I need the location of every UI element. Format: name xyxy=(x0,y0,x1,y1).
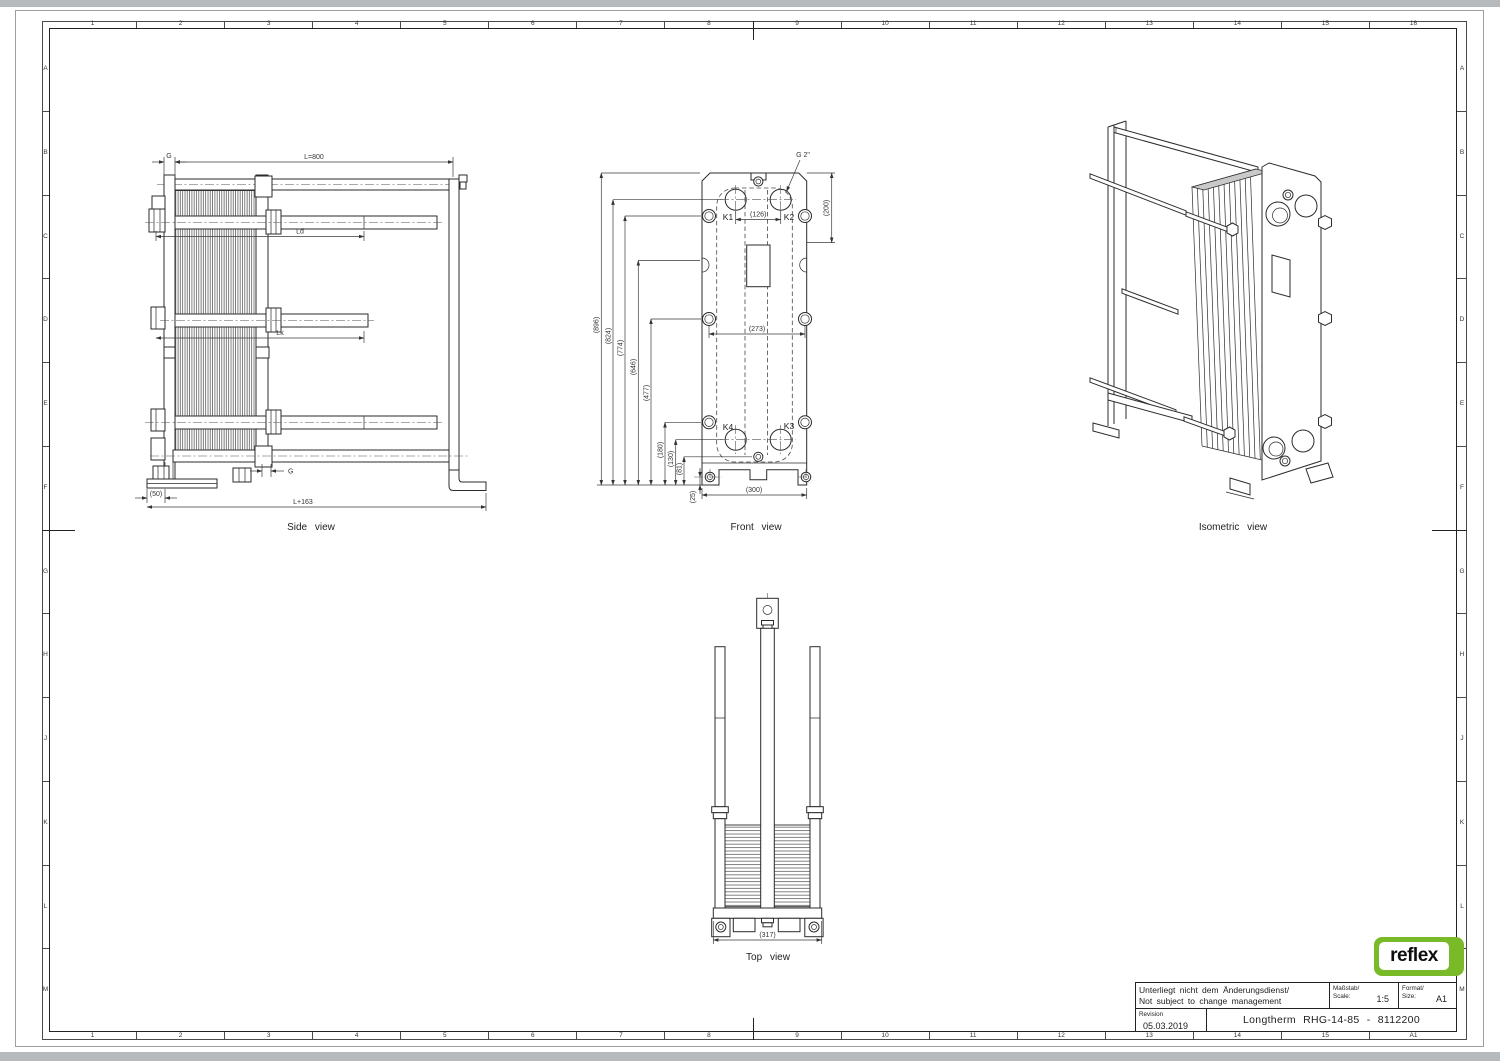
grid-label: B xyxy=(42,111,49,195)
scale-cell: Maßstab/ Scale: 1:5 xyxy=(1329,983,1398,1008)
revision-label: Revision xyxy=(1139,1011,1203,1019)
grid-label: H xyxy=(42,613,49,697)
reflex-logo-text: reflex xyxy=(1390,945,1438,967)
grid-label: F xyxy=(1457,446,1467,530)
grid-label: 15 xyxy=(1281,21,1369,28)
grid-label: 14 xyxy=(1193,21,1281,28)
dim-774: (774) xyxy=(617,340,624,356)
grid-label: 12 xyxy=(1017,1032,1105,1040)
reflex-logo-plate: reflex xyxy=(1379,942,1449,970)
dim-foot: (50) xyxy=(150,491,162,498)
dim-896: (896) xyxy=(594,317,601,333)
dim-824: (824) xyxy=(605,328,612,344)
connection-size-label: G 2" xyxy=(796,152,810,159)
grid-label: J xyxy=(1457,697,1467,781)
grid-label: 13 xyxy=(1105,21,1193,28)
grid-label: 4 xyxy=(312,1032,400,1040)
grid-label: 1 xyxy=(49,1032,136,1040)
format-cell: Format/ Size: A1 xyxy=(1398,983,1456,1008)
port-label-k3: K3 xyxy=(784,421,795,431)
dim-130: (130) xyxy=(668,451,675,467)
grid-label: K xyxy=(1457,781,1467,865)
grid-label: E xyxy=(1457,362,1467,446)
scale-value: 1:5 xyxy=(1376,994,1389,1004)
grid-label: M xyxy=(42,948,49,1032)
grid-label: J xyxy=(42,697,49,781)
grid-label: 6 xyxy=(488,1032,576,1040)
grid-label: 7 xyxy=(576,1032,664,1040)
isometric-view: Isometric view xyxy=(1090,121,1333,533)
ports xyxy=(720,185,796,454)
dim-g-bottom: G xyxy=(288,469,293,476)
grid-label: 2 xyxy=(136,1032,224,1040)
dim-length: L=800 xyxy=(304,154,324,161)
grid-label: 1 xyxy=(49,21,136,28)
grid-label: 9 xyxy=(753,21,841,28)
dim-g-top: G xyxy=(166,153,171,160)
frame-bolts xyxy=(703,210,812,429)
dim-25: (25) xyxy=(690,491,697,503)
port-label-k4: K4 xyxy=(723,422,734,432)
drawing-title: Longtherm RHG-14-85 - 8112200 xyxy=(1206,1009,1456,1031)
grid-label: D xyxy=(1457,278,1467,362)
grid-label: 13 xyxy=(1105,1032,1193,1040)
grid-label: K xyxy=(42,781,49,865)
dim-317: (317) xyxy=(759,932,775,939)
grid-label: 4 xyxy=(312,21,400,28)
grid-label: 11 xyxy=(929,1032,1017,1040)
port-label-k1: K1 xyxy=(723,212,734,222)
title-block: Unterliegt nicht dem Änderungsdienst/ No… xyxy=(1135,982,1457,1032)
grid-label: A xyxy=(42,28,49,111)
note-line-en: Not subject to change management xyxy=(1139,996,1326,1007)
grid-label: 6 xyxy=(488,21,576,28)
dim-total: L+163 xyxy=(293,499,313,506)
dim-273: (273) xyxy=(749,326,765,333)
grid-label: A xyxy=(1457,28,1467,111)
grid-label: 14 xyxy=(1193,1032,1281,1040)
screen-edge-bottom xyxy=(0,1052,1500,1061)
grid-label: C xyxy=(42,195,49,279)
grid-label: 12 xyxy=(1017,21,1105,28)
grid-label: C xyxy=(1457,195,1467,279)
grid-label: 7 xyxy=(576,21,664,28)
grid-label: F xyxy=(42,446,49,530)
grid-label: 10 xyxy=(841,1032,929,1040)
front-view-caption: Front view xyxy=(730,522,782,533)
grid-label: 11 xyxy=(929,21,1017,28)
top-view-caption: Top view xyxy=(746,952,791,963)
side-view-caption: Side view xyxy=(287,522,336,533)
plate-pack xyxy=(1192,169,1268,460)
engineering-drawing-sheet: { "border": { "top": ["1","2","3","4","5… xyxy=(0,0,1500,1061)
side-view: G L=800 Ld Lk G (50) L+163 Side view xyxy=(135,153,486,533)
revision-cell: Revision 05.03.2019 xyxy=(1136,1009,1206,1031)
dim-646: (646) xyxy=(631,359,638,375)
dim-81: (81) xyxy=(676,463,683,475)
top-view: (317) Top view xyxy=(712,593,824,963)
grid-label: L xyxy=(1457,865,1467,949)
grid-label: B xyxy=(1457,111,1467,195)
screen-edge-top xyxy=(0,0,1500,7)
note-line-de: Unterliegt nicht dem Änderungsdienst/ xyxy=(1139,985,1326,996)
grid-label: G xyxy=(42,530,49,614)
grid-label: L xyxy=(42,865,49,949)
grid-label: D xyxy=(42,278,49,362)
grid-label: 16 xyxy=(1369,21,1457,28)
grid-label: G xyxy=(1457,530,1467,614)
front-view: K1 K2 K4 K3 G 2" (126) (200) (273) (300)… xyxy=(594,152,835,533)
dim-lk: Lk xyxy=(276,330,284,337)
format-label-de: Format/ xyxy=(1402,985,1453,993)
scale-label-de: Maßstab/ xyxy=(1333,985,1395,993)
dim-126: (126) xyxy=(750,212,766,219)
change-management-note: Unterliegt nicht dem Änderungsdienst/ No… xyxy=(1136,983,1329,1008)
dim-477: (477) xyxy=(643,385,650,401)
grid-label: 9 xyxy=(753,1032,841,1040)
dim-300: (300) xyxy=(746,487,762,494)
format-value: A1 xyxy=(1436,994,1447,1004)
grid-label: A1 xyxy=(1369,1032,1457,1040)
grid-label: 3 xyxy=(224,1032,312,1040)
isometric-view-caption: Isometric view xyxy=(1199,522,1268,533)
grid-label: 3 xyxy=(224,21,312,28)
grid-label: E xyxy=(42,362,49,446)
port-label-k2: K2 xyxy=(784,212,795,222)
grid-label: 2 xyxy=(136,21,224,28)
grid-label: H xyxy=(1457,613,1467,697)
grid-label: 10 xyxy=(841,21,929,28)
revision-date: 05.03.2019 xyxy=(1143,1021,1203,1031)
dim-ld: Ld xyxy=(296,229,304,236)
dim-180: (180) xyxy=(657,442,664,458)
dim-200: (200) xyxy=(824,200,831,216)
reflex-logo: reflex xyxy=(1374,937,1464,976)
drawing-canvas: G L=800 Ld Lk G (50) L+163 Side view xyxy=(49,28,1457,1032)
grid-label: 5 xyxy=(400,1032,488,1040)
grid-label: 15 xyxy=(1281,1032,1369,1040)
grid-label: 8 xyxy=(664,1032,752,1040)
grid-label: 5 xyxy=(400,21,488,28)
grid-label: 8 xyxy=(664,21,752,28)
